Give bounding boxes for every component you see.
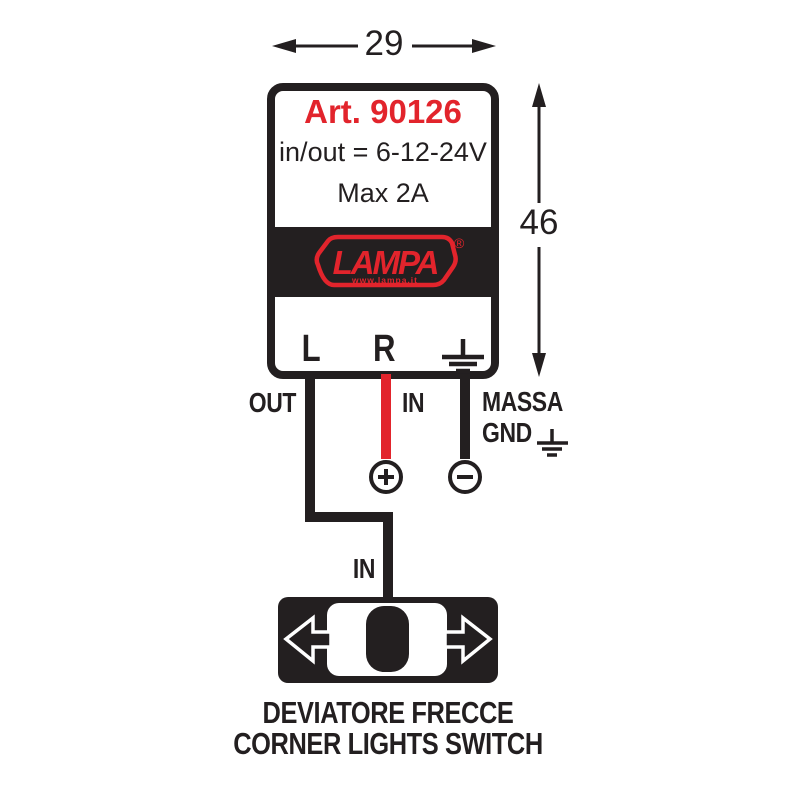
brand-website: www.lampa.it <box>351 275 418 285</box>
switch-knob[interactable] <box>366 606 409 672</box>
article-number: Art. 90126 <box>271 95 495 128</box>
registered-mark-icon: ® <box>454 235 465 251</box>
gnd-label: GND <box>482 419 532 447</box>
gnd-symbol-icon <box>537 429 568 455</box>
terminal-r-label: R <box>368 330 401 368</box>
terminal-l-label: L <box>295 330 328 368</box>
in-wire-label: IN <box>402 389 424 417</box>
width-dimension-label: 29 <box>344 26 424 61</box>
switch-input-label: IN <box>326 555 375 583</box>
massa-label: MASSA <box>482 388 563 416</box>
height-dimension-label: 46 <box>509 205 569 240</box>
voltage-spec: in/out = 6-12-24V <box>271 139 495 166</box>
corner-lights-switch <box>278 597 498 683</box>
arrow-up-icon <box>532 83 546 107</box>
plus-terminal-icon <box>371 462 401 492</box>
current-spec: Max 2A <box>271 180 495 207</box>
switch-caption-line1: DEVIATORE FRECCE <box>224 697 552 728</box>
out-wire-label: OUT <box>240 389 296 417</box>
minus-terminal-icon <box>450 462 480 492</box>
arrow-right-icon <box>472 39 496 53</box>
wiring-diagram: LAMPA www.lampa.it ® <box>0 0 800 800</box>
switch-caption-line2: CORNER LIGHTS SWITCH <box>224 728 552 759</box>
arrow-left-icon <box>272 39 296 53</box>
arrow-down-icon <box>532 353 546 377</box>
